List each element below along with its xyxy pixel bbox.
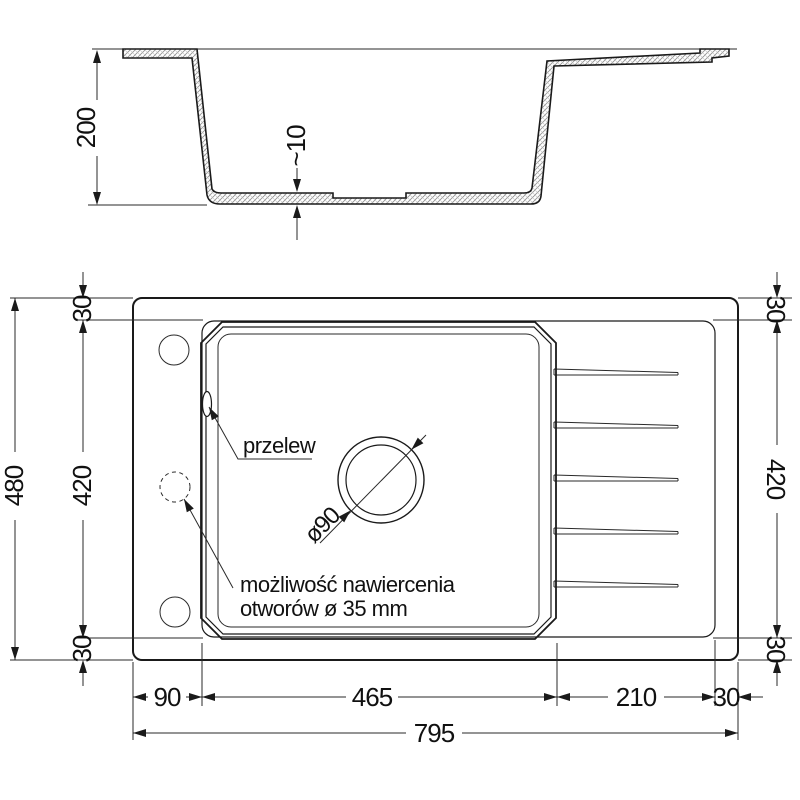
overflow-callout: przelew — [209, 407, 316, 459]
dim-rim-top-left-30: 30 — [67, 272, 97, 322]
plan-view: ø90 przelew możliwość nawiercenia otworó… — [0, 272, 792, 748]
dim-inner-height-right-label: 420 — [761, 459, 791, 500]
dim-bottom-thickness-label: ~10 — [281, 125, 311, 167]
dim-total-height-480: 480 — [0, 298, 29, 660]
dim-rim-top-left-label: 30 — [67, 295, 97, 322]
dim-bowl-width-465: 465 — [202, 682, 557, 712]
dim-total-height-label: 480 — [0, 465, 29, 506]
dim-bottom-thickness: ~10 — [281, 125, 311, 240]
sink-technical-drawing: 200 ~10 — [0, 0, 800, 800]
tap-hole-top — [159, 335, 189, 365]
dim-right-offset-label: 30 — [713, 682, 740, 712]
dim-depth-200: 200 — [71, 50, 101, 205]
dim-drainer-width-label: 210 — [616, 682, 657, 712]
dim-inner-height-right-420: 420 — [761, 320, 791, 638]
technical-drawing-sheet: 200 ~10 — [0, 0, 800, 800]
sink-outer-edge — [133, 298, 738, 660]
dim-total-width-795: 795 — [133, 718, 738, 748]
drain: ø90 — [299, 435, 426, 548]
dim-left-offset-label: 90 — [154, 682, 181, 712]
extension-lines — [10, 298, 792, 740]
dim-depth-label: 200 — [71, 107, 101, 148]
dim-inner-height-left-420: 420 — [67, 320, 97, 638]
drill-note-line1: możliwość nawiercenia — [240, 572, 456, 597]
overflow-slot — [203, 392, 212, 417]
dim-left-offset-90: 90 — [133, 682, 202, 712]
dim-right-offset-30: 30 — [713, 682, 763, 712]
dim-rim-top-right-label: 30 — [761, 296, 791, 323]
section-material-profile — [123, 49, 729, 204]
overflow-label: przelew — [243, 433, 316, 458]
drainer-grooves — [554, 369, 678, 587]
drill-note-line2: otworów ø 35 mm — [240, 596, 407, 621]
dim-rim-bottom-left-30: 30 — [67, 635, 97, 686]
section-view: 200 ~10 — [71, 49, 737, 240]
dim-rim-bottom-left-label: 30 — [67, 635, 97, 662]
dim-rim-bottom-right-30: 30 — [761, 636, 791, 686]
tap-hole-bottom — [160, 597, 190, 627]
optional-tap-hole-dashed — [160, 472, 190, 502]
dim-rim-bottom-right-label: 30 — [761, 636, 791, 663]
dim-total-width-label: 795 — [414, 718, 455, 748]
dim-rim-top-right-30: 30 — [761, 272, 791, 323]
drain-diameter-label: ø90 — [299, 502, 346, 549]
dim-inner-height-left-label: 420 — [67, 465, 97, 506]
dim-drainer-width-210: 210 — [557, 682, 715, 712]
dim-bowl-width-label: 465 — [352, 682, 393, 712]
